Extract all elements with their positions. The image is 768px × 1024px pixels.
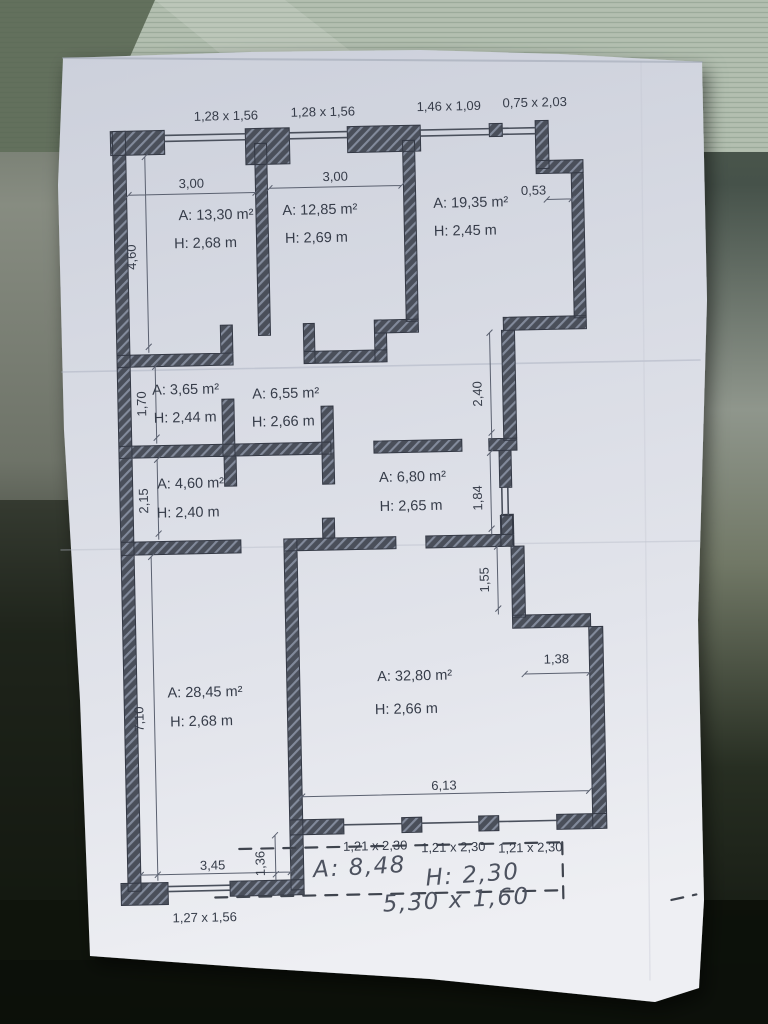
notch-dim-label: 0,53 (521, 182, 547, 198)
side-dim-label: 7,10 (131, 706, 147, 732)
room-area-label: A: 3,65 m² (152, 381, 219, 398)
side-dim-label: 1,84 (470, 485, 486, 511)
room-height-label: H: 2,65 m (380, 498, 443, 515)
step-dim-label: 1,38 (544, 651, 570, 667)
bottom-window-label: 1,27 x 1,56 (172, 909, 237, 925)
room-area-label: A: 12,85 m² (282, 201, 357, 219)
side-dim-label: 1,70 (134, 391, 150, 417)
width-dim-label: 3,00 (179, 176, 205, 192)
room-height-label: H: 2,69 m (285, 230, 348, 247)
offset-dim-label: 1,36 (252, 851, 268, 877)
room-height-label: H: 2,68 m (174, 235, 237, 252)
room-height-label: H: 2,44 m (154, 409, 217, 426)
side-dim-label: 1,55 (476, 567, 492, 593)
room-height-label: H: 2,68 m (170, 713, 233, 730)
side-dim-label: 4,60 (124, 244, 140, 270)
photo-of-floorplan: 1,28 x 1,56 1,28 x 1,56 1,46 x 1,09 0,75… (0, 0, 768, 1024)
room-area-label: A: 28,45 m² (167, 684, 242, 702)
balcony-door-label: 1,21 x 2,30 (498, 839, 563, 855)
balcony-door-label: 1,21 x 2,30 (421, 839, 486, 855)
top-window-label: 1,46 x 1,09 (416, 98, 481, 114)
room-area-label: A: 32,80 m² (377, 668, 452, 686)
top-window-label: 0,75 x 2,03 (502, 94, 567, 110)
room-height-label: H: 2,45 m (434, 222, 497, 239)
top-window-label: 1,28 x 1,56 (291, 103, 356, 119)
room-area-label: A: 6,80 m² (379, 469, 446, 486)
room-area-label: A: 6,55 m² (252, 385, 319, 402)
room-height-label: H: 2,66 m (375, 701, 438, 718)
side-dim-label: 2,15 (136, 488, 152, 514)
width-dim-label: 3,00 (322, 169, 348, 185)
side-dim-label: 2,40 (470, 381, 486, 407)
room-height-label: H: 2,66 m (252, 413, 315, 430)
handwritten-balcony-area: A: 8,48 (310, 852, 406, 883)
room-area-label: A: 4,60 m² (157, 475, 224, 492)
room-area-label: A: 19,35 m² (433, 194, 508, 212)
floorplan-photo: 1,28 x 1,56 1,28 x 1,56 1,46 x 1,09 0,75… (0, 0, 768, 1024)
width-dim-label: 6,13 (431, 777, 457, 793)
room-height-label: H: 2,40 m (157, 504, 220, 521)
room-area-label: A: 13,30 m² (178, 207, 253, 225)
width-dim-label: 3,45 (200, 857, 226, 873)
top-window-label: 1,28 x 1,56 (194, 107, 259, 123)
